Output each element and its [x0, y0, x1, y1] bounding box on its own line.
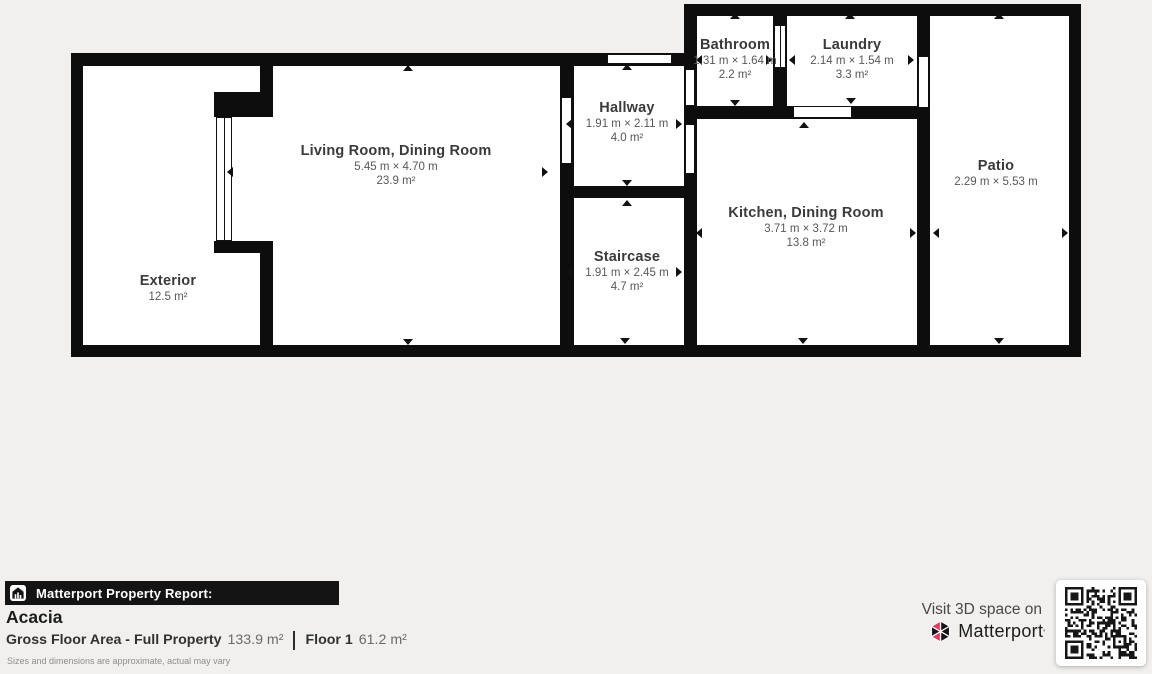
separator-bar — [293, 631, 295, 650]
dim-arrow-living-right — [542, 167, 548, 177]
wall-exterior-living-lower — [260, 253, 273, 357]
room-area: 12.5 m² — [140, 291, 196, 304]
room-dimensions: 1.91 m × 2.11 m — [586, 118, 669, 131]
matterport-logo-icon — [929, 620, 952, 643]
matterport-wordmark: Matterport — [958, 621, 1043, 642]
dim-arrow-living-down — [403, 339, 413, 345]
dim-arrow-laundry-down — [846, 98, 856, 104]
wall-right — [1069, 4, 1081, 357]
room-dimensions: 5.45 m × 4.70 m — [301, 161, 492, 174]
door-laundry-kitchen — [793, 106, 852, 118]
wall-window-jog-upper — [214, 92, 273, 117]
room-dimensions: 1.91 m × 2.45 m — [585, 267, 668, 280]
room-name: Staircase — [585, 249, 668, 266]
dim-arrow-hallway-right — [676, 119, 682, 129]
dim-arrow-staircase-down — [620, 338, 630, 344]
dim-arrow-patio-right — [1062, 228, 1068, 238]
room-label-patio: Patio 2.29 m × 5.53 m — [954, 158, 1037, 189]
dim-arrow-hallway-down — [622, 180, 632, 186]
dim-arrow-living-up — [403, 65, 413, 71]
disclaimer-text: Sizes and dimensions are approximate, ac… — [7, 656, 230, 666]
matterport-brand-link[interactable]: Matterport' — [880, 620, 1045, 643]
room-area: 4.0 m² — [586, 132, 669, 145]
room-label-staircase: Staircase 1.91 m × 2.45 m 4.7 m² — [585, 249, 668, 294]
wall-bottom — [71, 345, 1081, 357]
dim-arrow-patio-up — [994, 13, 1004, 19]
floor-value: 61.2 m² — [359, 632, 407, 648]
door-hallway-kitchen — [685, 124, 695, 174]
room-area: 2.2 m² — [693, 69, 776, 82]
room-label-exterior: Exterior 12.5 m² — [140, 273, 196, 304]
room-name: Kitchen, Dining Room — [728, 205, 883, 222]
room-area: 4.7 m² — [585, 281, 668, 294]
dim-arrow-kitchen-down — [798, 338, 808, 344]
room-name: Bathroom — [693, 37, 776, 54]
room-dimensions: 2.14 m × 1.54 m — [810, 55, 893, 68]
trademark-tick: ' — [1043, 628, 1045, 638]
wall-hallway-staircase — [560, 186, 697, 198]
plan-fill-left-block — [71, 53, 697, 357]
floor-area-summary: Gross Floor Area - Full Property 133.9 m… — [6, 629, 407, 651]
room-dimensions: 3.71 m × 3.72 m — [728, 223, 883, 236]
wall-left — [71, 53, 83, 357]
room-dimensions: 1.31 m × 1.64 m — [693, 55, 776, 68]
wall-top-left-block — [71, 53, 697, 66]
report-header-bar: Matterport Property Report: — [5, 581, 339, 605]
dim-arrow-hallway-up — [622, 64, 632, 70]
room-label-living: Living Room, Dining Room 5.45 m × 4.70 m… — [301, 143, 492, 188]
property-report-icon — [10, 585, 26, 601]
dim-arrow-staircase-left — [566, 267, 572, 277]
report-header-text: Matterport Property Report: — [36, 586, 213, 601]
wall-window-jog-lower — [214, 241, 273, 253]
dim-arrow-kitchen-up — [799, 122, 809, 128]
room-name: Hallway — [586, 100, 669, 117]
qr-code — [1065, 587, 1137, 659]
dim-arrow-bathroom-down — [730, 100, 740, 106]
floor-label: Floor 1 — [305, 632, 352, 648]
dim-arrow-laundry-left — [789, 55, 795, 65]
room-label-hallway: Hallway 1.91 m × 2.11 m 4.0 m² — [586, 100, 669, 145]
dim-arrow-patio-down — [994, 338, 1004, 344]
dim-arrow-patio-left — [933, 228, 939, 238]
room-label-laundry: Laundry 2.14 m × 1.54 m 3.3 m² — [810, 37, 893, 82]
dim-arrow-hallway-left — [566, 119, 572, 129]
room-name: Living Room, Dining Room — [301, 143, 492, 160]
room-area: 23.9 m² — [301, 175, 492, 188]
property-name: Acacia — [6, 607, 62, 628]
dim-arrow-staircase-up — [622, 200, 632, 206]
dim-arrow-staircase-right — [676, 267, 682, 277]
dim-arrow-laundry-right — [908, 55, 914, 65]
gfa-label: Gross Floor Area - Full Property — [6, 632, 221, 648]
dim-arrow-laundry-up — [845, 13, 855, 19]
dim-arrow-bathroom-up — [730, 13, 740, 19]
visit-3d-space-text: Visit 3D space on — [880, 601, 1042, 619]
dim-arrow-kitchen-left — [696, 228, 702, 238]
door-living-hallway — [561, 97, 572, 164]
door-hallway-top — [607, 54, 672, 64]
wall-top-right-block — [684, 4, 1081, 16]
room-dimensions: 2.29 m × 5.53 m — [954, 176, 1037, 189]
dim-arrow-kitchen-right — [910, 228, 916, 238]
room-label-kitchen: Kitchen, Dining Room 3.71 m × 3.72 m 13.… — [728, 205, 883, 250]
room-name: Exterior — [140, 273, 196, 290]
room-label-bathroom: Bathroom 1.31 m × 1.64 m 2.2 m² — [693, 37, 776, 82]
matterport-floor-plan-report-page: { "colors": { "background": "#f1f0ee", "… — [0, 0, 1152, 674]
qr-card — [1056, 580, 1146, 666]
dim-arrow-living-left — [227, 167, 233, 177]
door-laundry-patio — [918, 56, 929, 108]
room-area: 3.3 m² — [810, 69, 893, 82]
room-name: Laundry — [810, 37, 893, 54]
room-area: 13.8 m² — [728, 237, 883, 250]
room-name: Patio — [954, 158, 1037, 175]
gfa-value: 133.9 m² — [227, 632, 283, 648]
window-exterior-living — [216, 117, 232, 241]
